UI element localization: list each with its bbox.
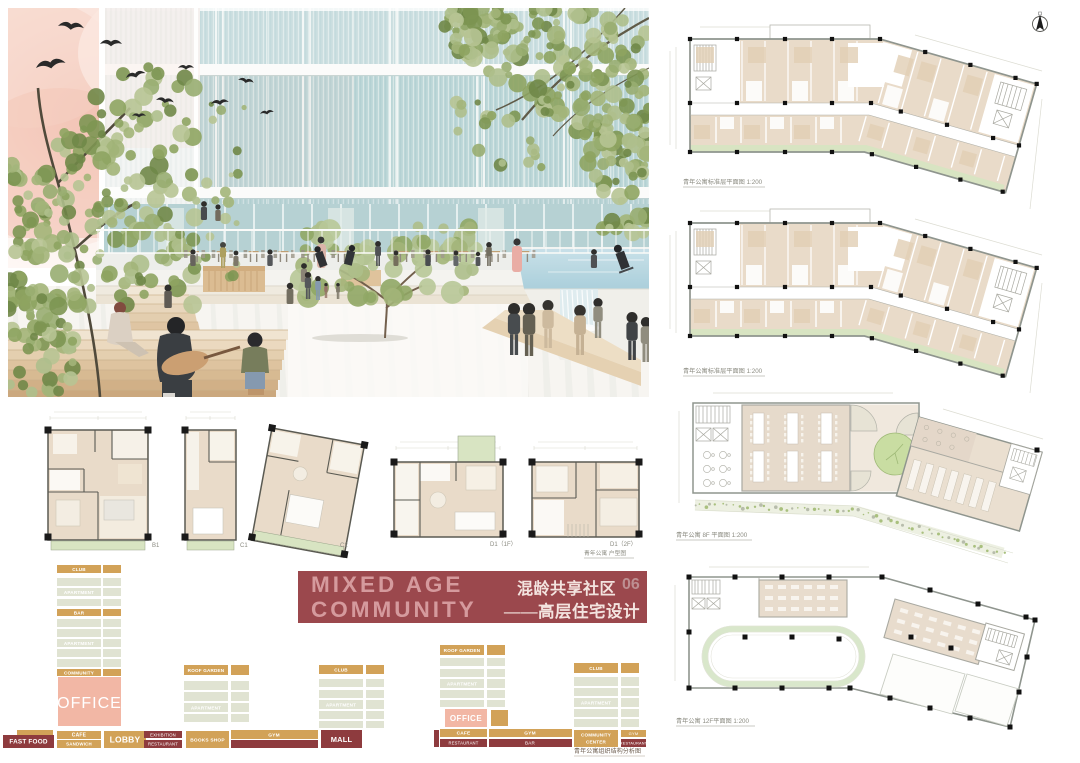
svg-text:CENTER: CENTER [586,740,607,745]
svg-text:APARTMENT: APARTMENT [326,702,356,707]
svg-text:青年公寓标准层平面图 1:200: 青年公寓标准层平面图 1:200 [683,367,763,375]
svg-text:APARTMENT: APARTMENT [64,641,94,646]
svg-text:CLUB: CLUB [334,667,348,672]
svg-text:ROOF GARDEN: ROOF GARDEN [444,648,481,653]
svg-text:CAFE: CAFE [457,731,471,737]
svg-text:C1: C1 [240,543,248,549]
svg-text:BAR: BAR [525,741,536,746]
svg-text:RESTAURANT: RESTAURANT [620,741,648,745]
svg-text:APARTMENT: APARTMENT [64,590,94,595]
svg-text:MALL: MALL [331,735,353,744]
svg-text:B1: B1 [152,543,160,549]
svg-text:CAFE: CAFE [72,733,87,739]
svg-text:CLUB: CLUB [72,567,86,572]
svg-text:LOBBY: LOBBY [110,735,141,745]
svg-text:COMMUNITY: COMMUNITY [581,733,611,738]
svg-text:CLUB: CLUB [589,666,603,671]
svg-text:SANDWICH: SANDWICH [66,742,92,747]
svg-text:ROOF GARDEN: ROOF GARDEN [188,668,225,673]
svg-text:BAR: BAR [74,610,85,615]
svg-text:青年公寓标准层平面图 1:200: 青年公寓标准层平面图 1:200 [683,178,763,186]
svg-text:GYM: GYM [629,731,639,736]
svg-text:APARTMENT: APARTMENT [581,700,611,705]
svg-text:RESTAURANT: RESTAURANT [148,742,178,747]
svg-text:青年公寓 12F平面图 1:200: 青年公寓 12F平面图 1:200 [676,717,749,725]
svg-text:OFFICE: OFFICE [450,714,482,723]
svg-text:青年公寓 8F 平面图 1:200: 青年公寓 8F 平面图 1:200 [676,531,748,539]
svg-text:GYM: GYM [524,731,536,737]
svg-text:GYM: GYM [268,732,280,738]
svg-text:D1（2F）: D1（2F） [610,541,637,548]
svg-text:FAST FOOD: FAST FOOD [9,739,48,746]
svg-text:COMMUNITY: COMMUNITY [64,670,94,675]
svg-text:D1（1F）: D1（1F） [490,541,517,548]
svg-text:C2: C2 [340,543,348,549]
svg-text:APARTMENT: APARTMENT [191,705,221,710]
svg-text:RESTAURANT: RESTAURANT [448,741,478,746]
svg-text:BOOKS SHOP: BOOKS SHOP [190,738,225,744]
svg-text:APARTMENT: APARTMENT [447,681,477,686]
svg-text:EXHIBITION: EXHIBITION [150,732,176,737]
svg-text:青年公寓组织结构分析图: 青年公寓组织结构分析图 [574,747,641,755]
svg-text:OFFICE: OFFICE [57,695,122,712]
